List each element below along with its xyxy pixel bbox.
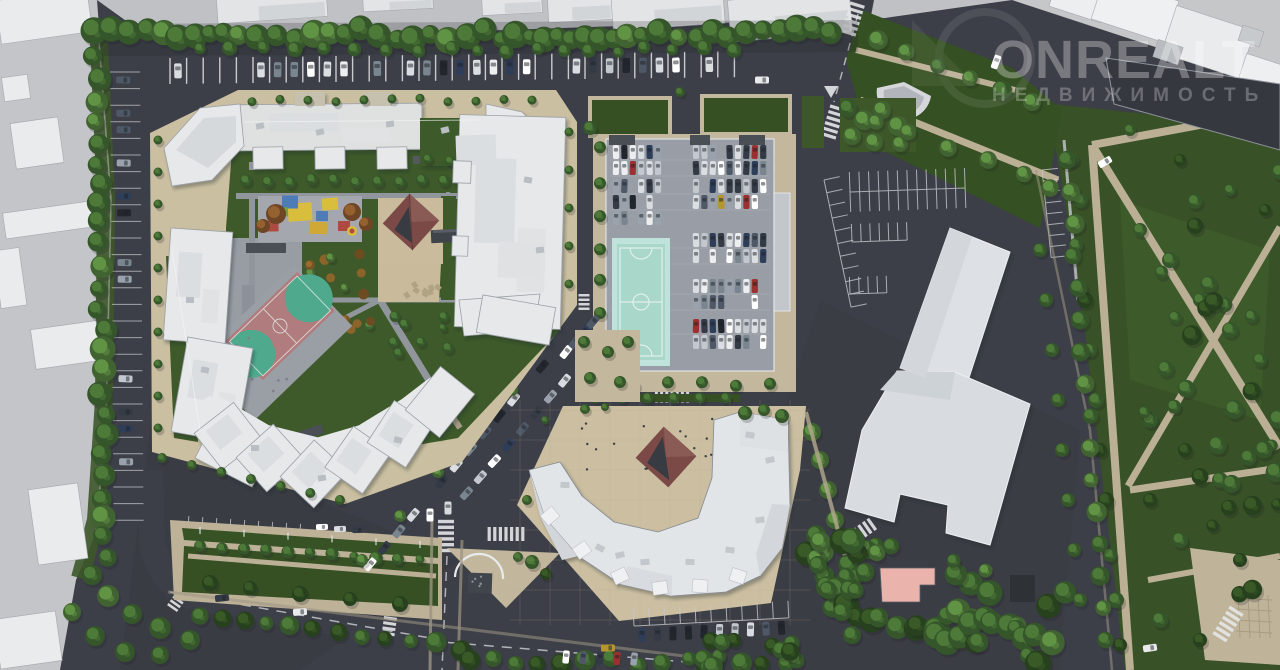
svg-text:ONREALT: ONREALT — [992, 30, 1256, 90]
svg-text:НЕДВИЖИМОСТЬ: НЕДВИЖИМОСТЬ — [992, 85, 1267, 106]
